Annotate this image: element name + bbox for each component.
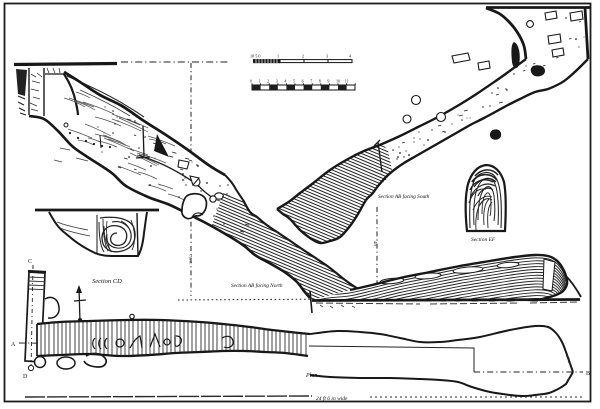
svg-text:11: 11 [345,79,349,84]
svg-text:7: 7 [310,79,312,84]
svg-text:A: A [11,342,16,348]
svg-text:4: 4 [284,79,286,84]
svg-text:10 5 0: 10 5 0 [250,54,260,59]
svg-text:1: 1 [259,79,261,84]
svg-text:Section CD: Section CD [92,278,122,285]
svg-text:Section EF: Section EF [471,237,496,243]
svg-text:9: 9 [327,79,329,84]
svg-text:2: 2 [267,79,269,84]
svg-text:B: B [586,371,590,377]
svg-text:8: 8 [319,79,321,84]
svg-text:Section AB facing South: Section AB facing South [378,193,430,200]
svg-text:1: 1 [277,54,279,59]
svg-text:Plan: Plan [305,373,317,379]
svg-text:C: C [28,259,32,265]
svg-text:0: 0 [250,79,252,84]
svg-text:6: 6 [302,79,304,84]
svg-text:5: 5 [293,79,295,84]
svg-text:4ft: 4ft [373,241,378,247]
svg-text:3: 3 [326,54,328,59]
svg-text:7ft 6: 7ft 6 [188,255,193,264]
svg-text:10: 10 [336,79,340,84]
svg-text:24 ft 6 in wide: 24 ft 6 in wide [316,395,348,402]
svg-text:D: D [23,374,28,380]
svg-text:2: 2 [302,54,304,59]
svg-text:3: 3 [276,79,278,84]
svg-text:Section AB facing North: Section AB facing North [231,282,283,289]
